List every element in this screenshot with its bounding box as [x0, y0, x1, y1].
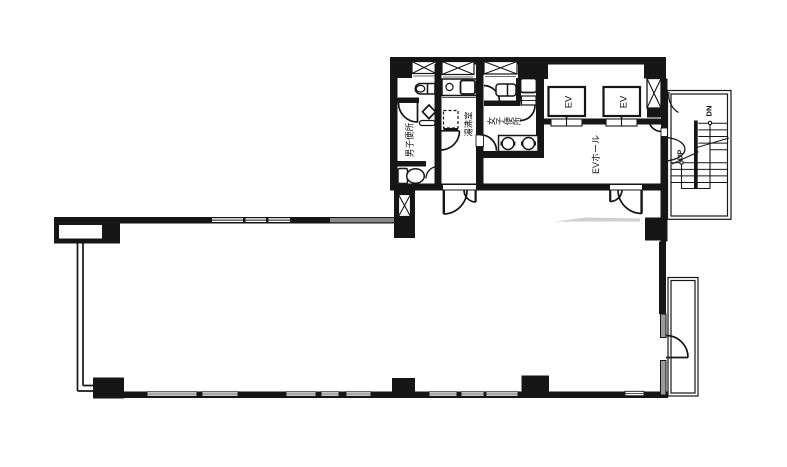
svg-text:EVホール: EVホール	[591, 135, 601, 174]
svg-text:EV: EV	[563, 95, 574, 108]
svg-text:DN: DN	[705, 106, 714, 117]
svg-text:所: 所	[512, 116, 522, 125]
svg-text:湯沸室: 湯沸室	[464, 111, 474, 136]
svg-text:男子便所: 男子便所	[404, 122, 415, 157]
svg-text:UP: UP	[676, 150, 685, 161]
svg-text:EV: EV	[618, 95, 629, 108]
